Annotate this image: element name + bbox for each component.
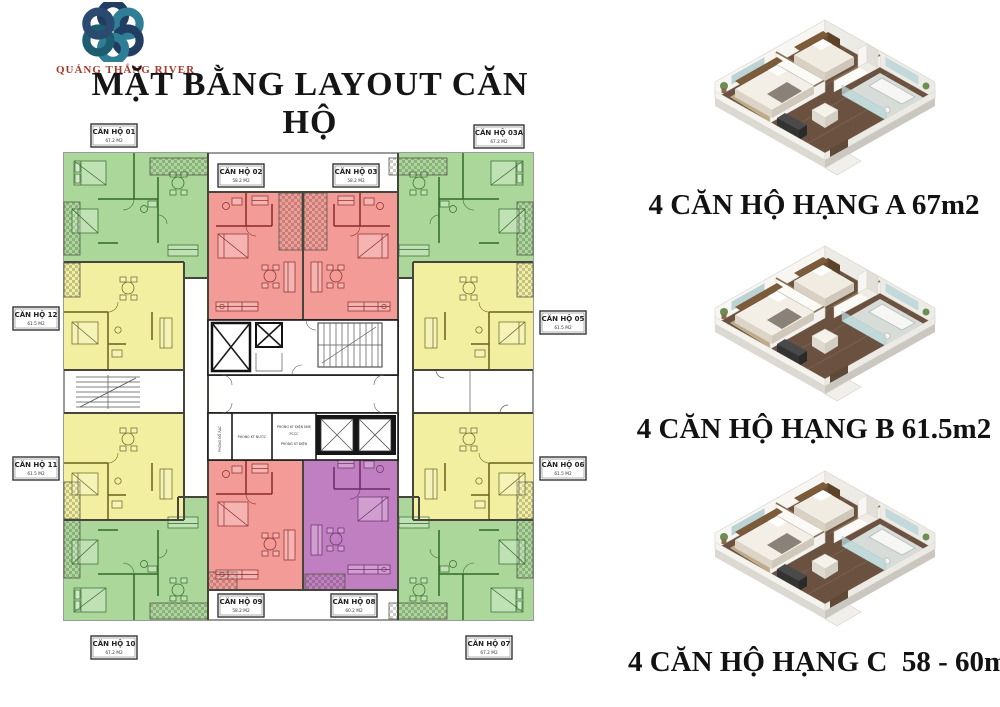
apartment-label-03: CĂN HỘ 03 58.2 M2 [333,164,379,187]
apartment-label-05: CĂN HỘ 05 61.5 M2 [540,311,586,334]
unit-type-b-render [690,230,950,418]
apartment-label-01: CĂN HỘ 01 67.2 M2 [91,124,137,147]
room-label-electric: PHÒNG KT ĐIỆN [281,441,308,446]
apartment-label-03a: CĂN HỘ 03A 67.2 M2 [474,125,524,148]
svg-text:CĂN HỘ 10: CĂN HỘ 10 [93,639,136,648]
svg-text:58.2 M2: 58.2 M2 [232,608,250,614]
svg-text:67.2 M2: 67.2 M2 [480,650,498,656]
room-label-trash: PHÒNG ĐỔ RÁC [217,425,222,452]
room-label-water: PHÒNG KT NƯỚC [238,434,267,439]
apartment-label-06: CĂN HỘ 06 61.5 M2 [540,457,586,480]
svg-text:CĂN HỘ 03A: CĂN HỘ 03A [475,128,524,137]
technical-core-bottom: PHÒNG ĐỔ RÁC PHÒNG KT NƯỚC PHÒNG KT ĐIỆN… [208,413,398,460]
svg-text:61.5 M2: 61.5 M2 [27,321,45,327]
svg-text:67.2 M2: 67.2 M2 [490,139,508,145]
svg-text:67.2 M2: 67.2 M2 [105,138,123,144]
room-label-fire: PCCC [290,432,300,436]
stairs-icon [318,323,382,367]
floor-plan: PHÒNG ĐỔ RÁC PHÒNG KT NƯỚC PHÒNG KT ĐIỆN… [0,112,612,672]
svg-text:67.2 M2: 67.2 M2 [105,650,123,656]
svg-text:CĂN HỘ 07: CĂN HỘ 07 [468,639,511,648]
svg-text:CĂN HỘ 06: CĂN HỘ 06 [542,460,585,469]
svg-text:CĂN HỘ 12: CĂN HỘ 12 [15,310,58,319]
svg-text:61.5 M2: 61.5 M2 [554,471,572,477]
svg-text:CĂN HỘ 05: CĂN HỘ 05 [542,314,585,323]
apartment-label-07: CĂN HỘ 07 67.2 M2 [466,636,512,659]
apartment-label-02: CĂN HỘ 02 58.2 M2 [218,164,264,187]
apartment-label-09: CĂN HỘ 09 58.2 M2 [218,594,264,617]
apartment-label-10: CĂN HỘ 10 67.2 M2 [91,636,137,659]
svg-text:CĂN HỘ 02: CĂN HỘ 02 [220,167,263,176]
svg-text:61.5 M2: 61.5 M2 [27,471,45,477]
svg-text:58.2 M2: 58.2 M2 [232,178,250,184]
svg-text:CĂN HỘ 09: CĂN HỘ 09 [220,597,263,606]
logo-flower-icon [58,2,168,62]
room-label-low-voltage: PHÒNG KT ĐIỆN NHẸ [277,424,311,429]
svg-text:CĂN HỘ 01: CĂN HỘ 01 [93,127,136,136]
svg-text:CĂN HỘ 03: CĂN HỘ 03 [335,167,378,176]
apartment-label-08: CĂN HỘ 08 60.2 M2 [331,594,377,617]
svg-text:CĂN HỘ 08: CĂN HỘ 08 [333,597,376,606]
unit-type-c-caption: 4 CĂN HỘ HẠNG C 58 - 60m2 [628,646,1000,679]
page: { "logo": { "text": "QUẢNG THẮNG RIVER",… [0,0,1000,707]
unit-type-a-caption: 4 CĂN HỘ HẠNG A 67m2 [628,189,1000,222]
unit-type-a-render [690,2,950,194]
apartment-label-12: CĂN HỘ 12 61.5 M2 [13,307,59,330]
svg-text:61.5 M2: 61.5 M2 [554,325,572,331]
unit-type-c-render [690,450,950,648]
svg-text:60.2 M2: 60.2 M2 [345,608,363,614]
apartment-label-11: CĂN HỘ 11 61.5 M2 [13,457,59,480]
svg-text:58.2 M2: 58.2 M2 [347,178,365,184]
unit-type-b-caption: 4 CĂN HỘ HẠNG B 61.5m2 [628,413,1000,446]
elevator-core-top [208,320,398,375]
svg-text:CĂN HỘ 11: CĂN HỘ 11 [15,460,58,469]
